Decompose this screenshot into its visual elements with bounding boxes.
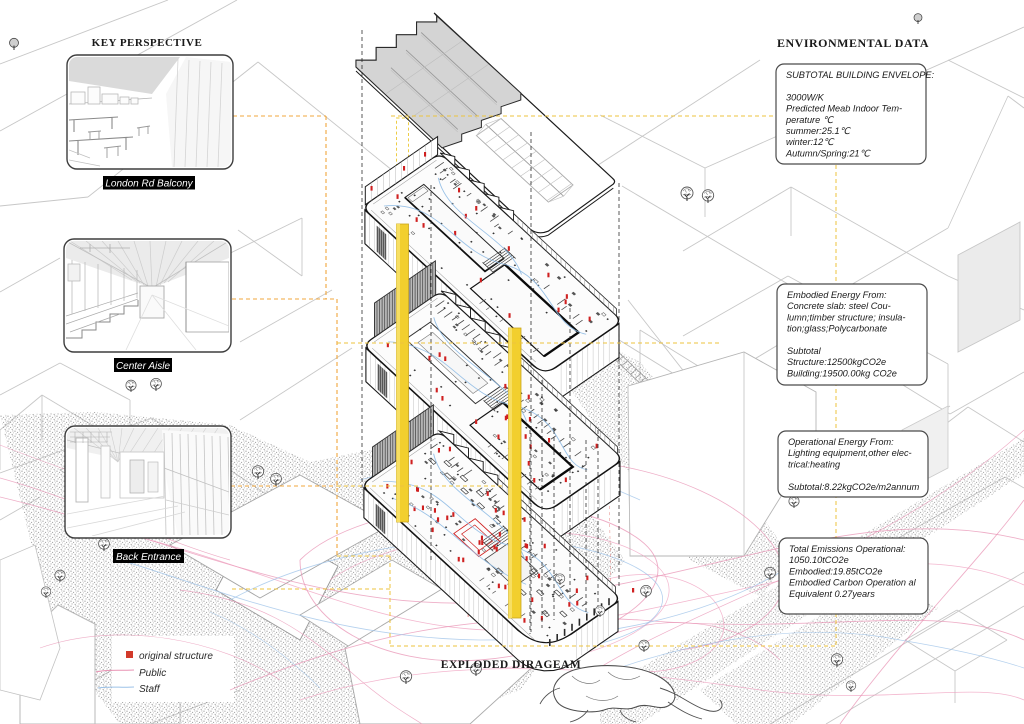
svg-text:Lighting equipment,other elec-: Lighting equipment,other elec- — [788, 448, 912, 458]
svg-text:KEY PERSPECTIVE: KEY PERSPECTIVE — [92, 37, 203, 49]
svg-text:Concrete slab: steel Cou-: Concrete slab: steel Cou- — [787, 301, 891, 311]
svg-text:Predicted Meab Indoor Tem-: Predicted Meab Indoor Tem- — [786, 104, 902, 114]
svg-text:perature ℃: perature ℃ — [785, 115, 835, 125]
svg-text:tion;glass;Polycarbonate: tion;glass;Polycarbonate — [787, 324, 887, 334]
svg-text:Autumn/Spring:21℃: Autumn/Spring:21℃ — [785, 148, 872, 158]
svg-text:trical:heating: trical:heating — [788, 459, 841, 469]
svg-text:3000W/K: 3000W/K — [786, 92, 825, 102]
svg-text:summer:25.1℃: summer:25.1℃ — [786, 126, 852, 136]
svg-text:EXPLODED DIRAGEAM: EXPLODED DIRAGEAM — [441, 659, 581, 671]
svg-text:SUBTOTAL BUILDING ENVELOPE:: SUBTOTAL BUILDING ENVELOPE: — [786, 70, 935, 80]
svg-text:Embodied Carbon Operation al: Embodied Carbon Operation al — [789, 578, 917, 588]
svg-text:Public: Public — [139, 668, 166, 679]
svg-text:Subtotal:8.22kgCO2e/m2annum: Subtotal:8.22kgCO2e/m2annum — [788, 482, 920, 492]
svg-text:Staff: Staff — [139, 684, 161, 695]
svg-text:Structure:12500kgCO2e: Structure:12500kgCO2e — [787, 357, 886, 367]
svg-text:Total Emissions Operational:: Total Emissions Operational: — [789, 544, 906, 554]
svg-text:London Rd Balcony: London Rd Balcony — [105, 178, 193, 189]
svg-text:lumn;timber structure; insula-: lumn;timber structure; insula- — [787, 312, 905, 322]
svg-text:Embodied:19.85tCO2e: Embodied:19.85tCO2e — [789, 566, 882, 576]
svg-text:Back Entrance: Back Entrance — [116, 552, 181, 563]
svg-text:1050.10tCO2e: 1050.10tCO2e — [789, 555, 849, 565]
svg-text:original structure: original structure — [139, 651, 213, 662]
svg-text:ENVIRONMENTAL DATA: ENVIRONMENTAL DATA — [777, 36, 929, 50]
svg-text:Building:19500.00kg CO2e: Building:19500.00kg CO2e — [787, 368, 897, 378]
svg-text:Embodied Energy From:: Embodied Energy From: — [787, 290, 887, 300]
svg-text:Subtotal: Subtotal — [787, 346, 822, 356]
svg-text:winter:12℃: winter:12℃ — [786, 137, 835, 147]
svg-text:Operational Energy From:: Operational Energy From: — [788, 437, 894, 447]
svg-text:Center Aisle: Center Aisle — [116, 361, 171, 372]
svg-text:Equivalent 0.27years: Equivalent 0.27years — [789, 589, 875, 599]
